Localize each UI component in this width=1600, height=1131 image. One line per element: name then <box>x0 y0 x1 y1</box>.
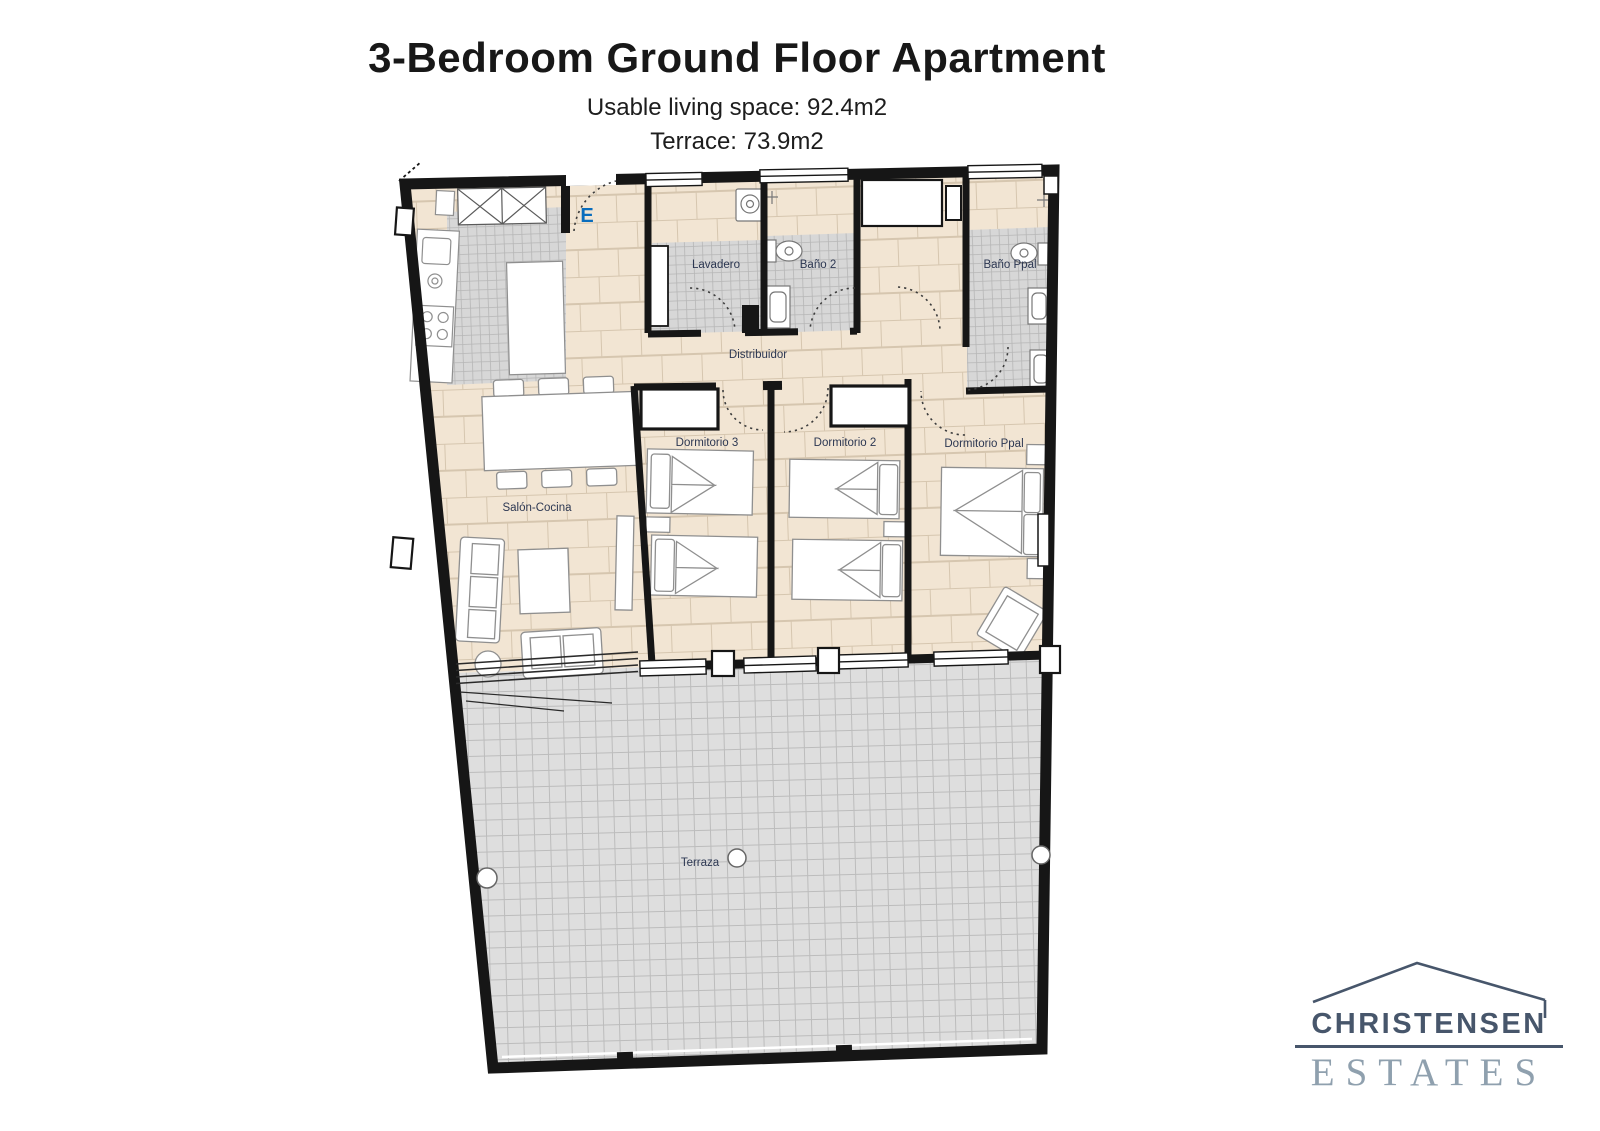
hall-niche <box>946 186 961 220</box>
wardrobe-dormitorio3 <box>641 389 718 429</box>
room-label-salon-cocina: Salón-Cocina <box>502 502 572 514</box>
dining-set <box>481 375 641 489</box>
room-label-bano-ppal: Baño Ppal <box>983 259 1036 271</box>
brand-logo: CHRISTENSEN ESTATES <box>1293 956 1565 1095</box>
entrance-label: E <box>580 205 593 227</box>
tv-unit <box>615 516 634 610</box>
room-label-distribuidor: Distribuidor <box>729 349 787 361</box>
terrace-column-center <box>728 849 746 867</box>
room-label-dormitorio3: Dormitorio 3 <box>676 437 739 449</box>
kitchen-island <box>507 261 566 374</box>
room-label-dormitorio-ppal: Dormitorio Ppal <box>944 438 1023 450</box>
lavadero-cabinet <box>650 246 668 326</box>
sofa <box>455 537 504 643</box>
room-label-terraza: Terraza <box>681 857 720 869</box>
logo-divider <box>1295 1045 1563 1048</box>
kitchen-cabinets <box>458 187 547 225</box>
room-label-lavadero: Lavadero <box>692 259 740 271</box>
toilet-banoppal <box>1038 243 1048 265</box>
flyer-page: 3-Bedroom Ground Floor Apartment Usable … <box>0 0 1600 1131</box>
terrace-floor <box>452 655 1047 1068</box>
terrace-column-left <box>477 868 497 888</box>
coffee-table <box>518 548 570 614</box>
side-table <box>475 651 501 677</box>
logo-name: CHRISTENSEN <box>1293 1008 1565 1041</box>
terrace-column-right <box>1032 846 1050 864</box>
logo-estates: ESTATES <box>1293 1050 1565 1095</box>
wardrobe-dormitorio2 <box>831 386 909 426</box>
hall-closet <box>862 180 942 226</box>
washing-machine <box>736 189 764 221</box>
room-label-bano2: Baño 2 <box>800 259 836 271</box>
room-label-dormitorio2: Dormitorio 2 <box>814 437 877 449</box>
